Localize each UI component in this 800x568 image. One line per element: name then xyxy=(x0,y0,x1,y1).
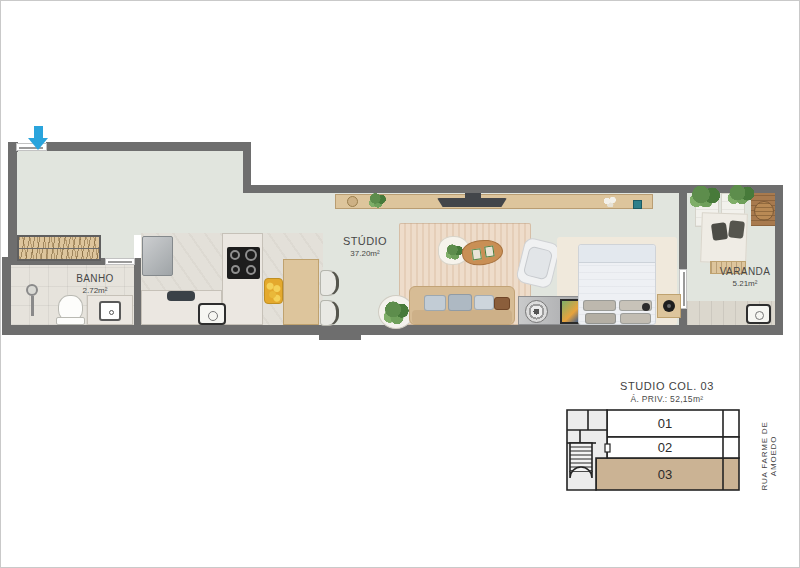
dish-rack xyxy=(167,291,195,301)
varanda-door-leaf xyxy=(683,272,685,306)
keyplan-drawing: 01 02 03 xyxy=(559,405,759,510)
sofa-pillow-brown xyxy=(494,297,510,310)
kitchen-sink-basin xyxy=(208,311,218,321)
varanda-plant-icon xyxy=(727,185,757,204)
bed-blanket-fold xyxy=(579,245,655,263)
bath-sink xyxy=(99,301,121,321)
wall-left-upper xyxy=(8,142,17,263)
bedside-lamp-icon xyxy=(663,300,675,312)
keyplan-unit-03-label: 03 xyxy=(658,467,672,482)
bathroom-door xyxy=(105,258,135,265)
shower-pipe xyxy=(31,296,34,316)
sofa-backrest xyxy=(412,310,512,324)
dining-chair xyxy=(320,270,339,296)
burner-icon xyxy=(231,265,240,274)
keyplan-unit-01-shape xyxy=(607,410,739,437)
toilet-tank xyxy=(56,317,85,325)
book-icon xyxy=(484,245,494,257)
fruit-bowl xyxy=(264,278,283,304)
keyplan-unit-02-label: 02 xyxy=(658,440,672,455)
bedside-item-icon xyxy=(642,303,650,311)
wall-bottom-step xyxy=(319,335,361,340)
floor-plant-icon xyxy=(384,299,410,325)
street-label: RUA FARME DE AMOEDO xyxy=(760,401,778,511)
burner-icon xyxy=(230,250,240,260)
bed-pillow xyxy=(620,313,651,324)
floorplan-page: BANHO 2.72m² STÚDIO 37.20m² xyxy=(0,0,800,568)
wardrobe xyxy=(17,235,101,261)
keyplan-unit-02-shape xyxy=(607,437,739,458)
dresser-washer-unit xyxy=(518,296,584,325)
sofa xyxy=(409,286,515,325)
tv xyxy=(437,198,507,207)
dining-table xyxy=(283,259,319,325)
varanda-name: VARANDA xyxy=(713,266,777,279)
shelf-book-icon xyxy=(633,200,642,209)
studio-label: STÚDIO 37.20m² xyxy=(329,235,401,258)
washer-icon xyxy=(525,300,548,323)
bathroom-door-leaf xyxy=(108,261,132,263)
bed xyxy=(578,244,656,325)
wall-top-entry xyxy=(46,142,251,151)
nightstand xyxy=(657,294,681,318)
cooktop xyxy=(227,247,260,279)
varanda-sink-basin xyxy=(755,311,764,320)
shelf-bowl-icon xyxy=(347,196,358,207)
burner-icon xyxy=(245,249,257,261)
shower-head-icon xyxy=(26,284,38,296)
shelf-decor-icon xyxy=(603,197,619,207)
armchair-cushion xyxy=(523,246,554,281)
wall-right xyxy=(775,185,783,335)
varanda-area: 5.21m² xyxy=(713,279,777,289)
bed-pillow xyxy=(585,313,616,324)
keyplan-header: STUDIO COL. 03 Á. PRIV.: 52,15m² xyxy=(576,380,758,404)
wall-bathroom-right xyxy=(134,258,141,325)
sofa-pillow xyxy=(424,295,446,311)
entry-arrow-head-icon xyxy=(28,138,48,150)
keyplan-unit-01-label: 01 xyxy=(658,416,672,431)
banho-label: BANHO 2.72m² xyxy=(63,273,127,295)
dining-chair xyxy=(320,300,339,326)
sofa-pillow xyxy=(448,294,472,311)
shelf-plant-icon xyxy=(369,192,387,208)
varanda-chair xyxy=(711,222,728,241)
deck-round-table xyxy=(754,201,774,221)
bath-faucet-icon xyxy=(109,310,114,315)
varanda-label: VARANDA 5.21m² xyxy=(713,266,777,288)
varanda-chair xyxy=(728,220,745,239)
entry-arrow-icon xyxy=(34,126,43,138)
wall-left-lower xyxy=(2,257,11,335)
banho-area: 2.72m² xyxy=(63,286,127,296)
studio-name: STÚDIO xyxy=(329,235,401,249)
wardrobe-shelf-line xyxy=(19,248,99,249)
bed-pillow xyxy=(583,300,616,311)
wall-varanda-upper xyxy=(679,193,687,269)
sofa-pillow xyxy=(474,295,494,310)
varanda-sink xyxy=(746,304,771,324)
lamp-dot xyxy=(667,304,671,308)
studio-area: 37.20m² xyxy=(329,249,401,259)
fridge xyxy=(142,236,173,276)
kitchen-sink xyxy=(198,303,226,325)
banho-name: BANHO xyxy=(63,273,127,286)
book-icon xyxy=(471,248,481,260)
keyplan-subtitle: Á. PRIV.: 52,15m² xyxy=(576,394,758,404)
varanda-plant-icon xyxy=(689,186,723,207)
burner-icon xyxy=(246,265,256,275)
keyplan-title: STUDIO COL. 03 xyxy=(576,380,758,392)
